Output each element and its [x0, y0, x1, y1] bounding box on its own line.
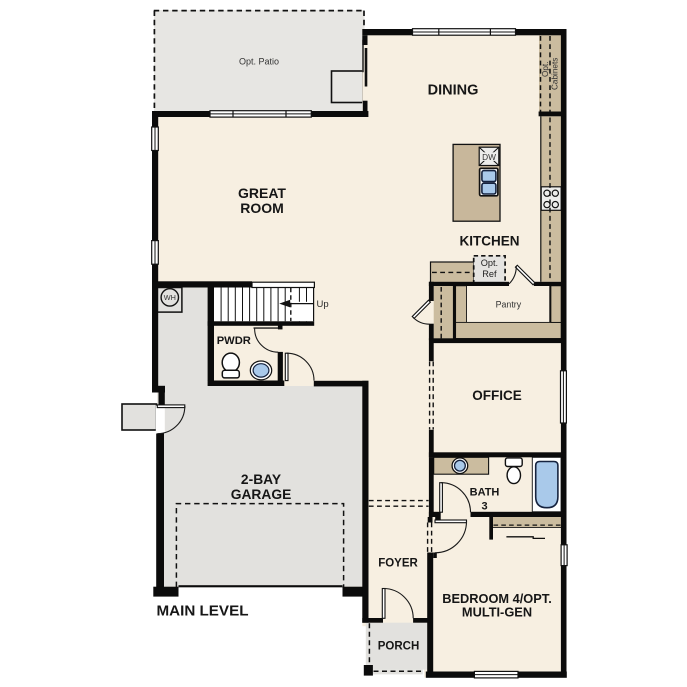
svg-text:FOYER: FOYER	[378, 558, 418, 570]
svg-text:Pantry: Pantry	[496, 300, 522, 310]
svg-text:PORCH: PORCH	[378, 641, 420, 653]
svg-text:PWDR: PWDR	[217, 335, 251, 347]
svg-text:Up: Up	[317, 299, 329, 310]
svg-text:2-BAY: 2-BAY	[241, 472, 281, 487]
svg-text:MAIN LEVEL: MAIN LEVEL	[157, 602, 249, 619]
svg-text:GARAGE: GARAGE	[231, 487, 292, 502]
svg-text:Opt. Patio: Opt. Patio	[239, 56, 279, 66]
svg-text:BATH: BATH	[470, 487, 500, 499]
svg-text:WH: WH	[164, 293, 176, 302]
svg-text:GREAT: GREAT	[238, 185, 286, 201]
svg-text:MULTI-GEN: MULTI-GEN	[462, 605, 532, 620]
svg-text:DW: DW	[482, 152, 496, 162]
svg-text:Cabinets: Cabinets	[550, 58, 559, 90]
svg-text:3: 3	[481, 500, 487, 512]
svg-text:Opt.: Opt.	[541, 62, 550, 77]
svg-text:Opt.: Opt.	[481, 258, 498, 268]
svg-text:KITCHEN: KITCHEN	[460, 233, 520, 248]
svg-text:Ref: Ref	[482, 269, 497, 279]
svg-text:ROOM: ROOM	[240, 200, 284, 216]
svg-text:OFFICE: OFFICE	[472, 388, 522, 403]
svg-text:DINING: DINING	[428, 83, 479, 99]
